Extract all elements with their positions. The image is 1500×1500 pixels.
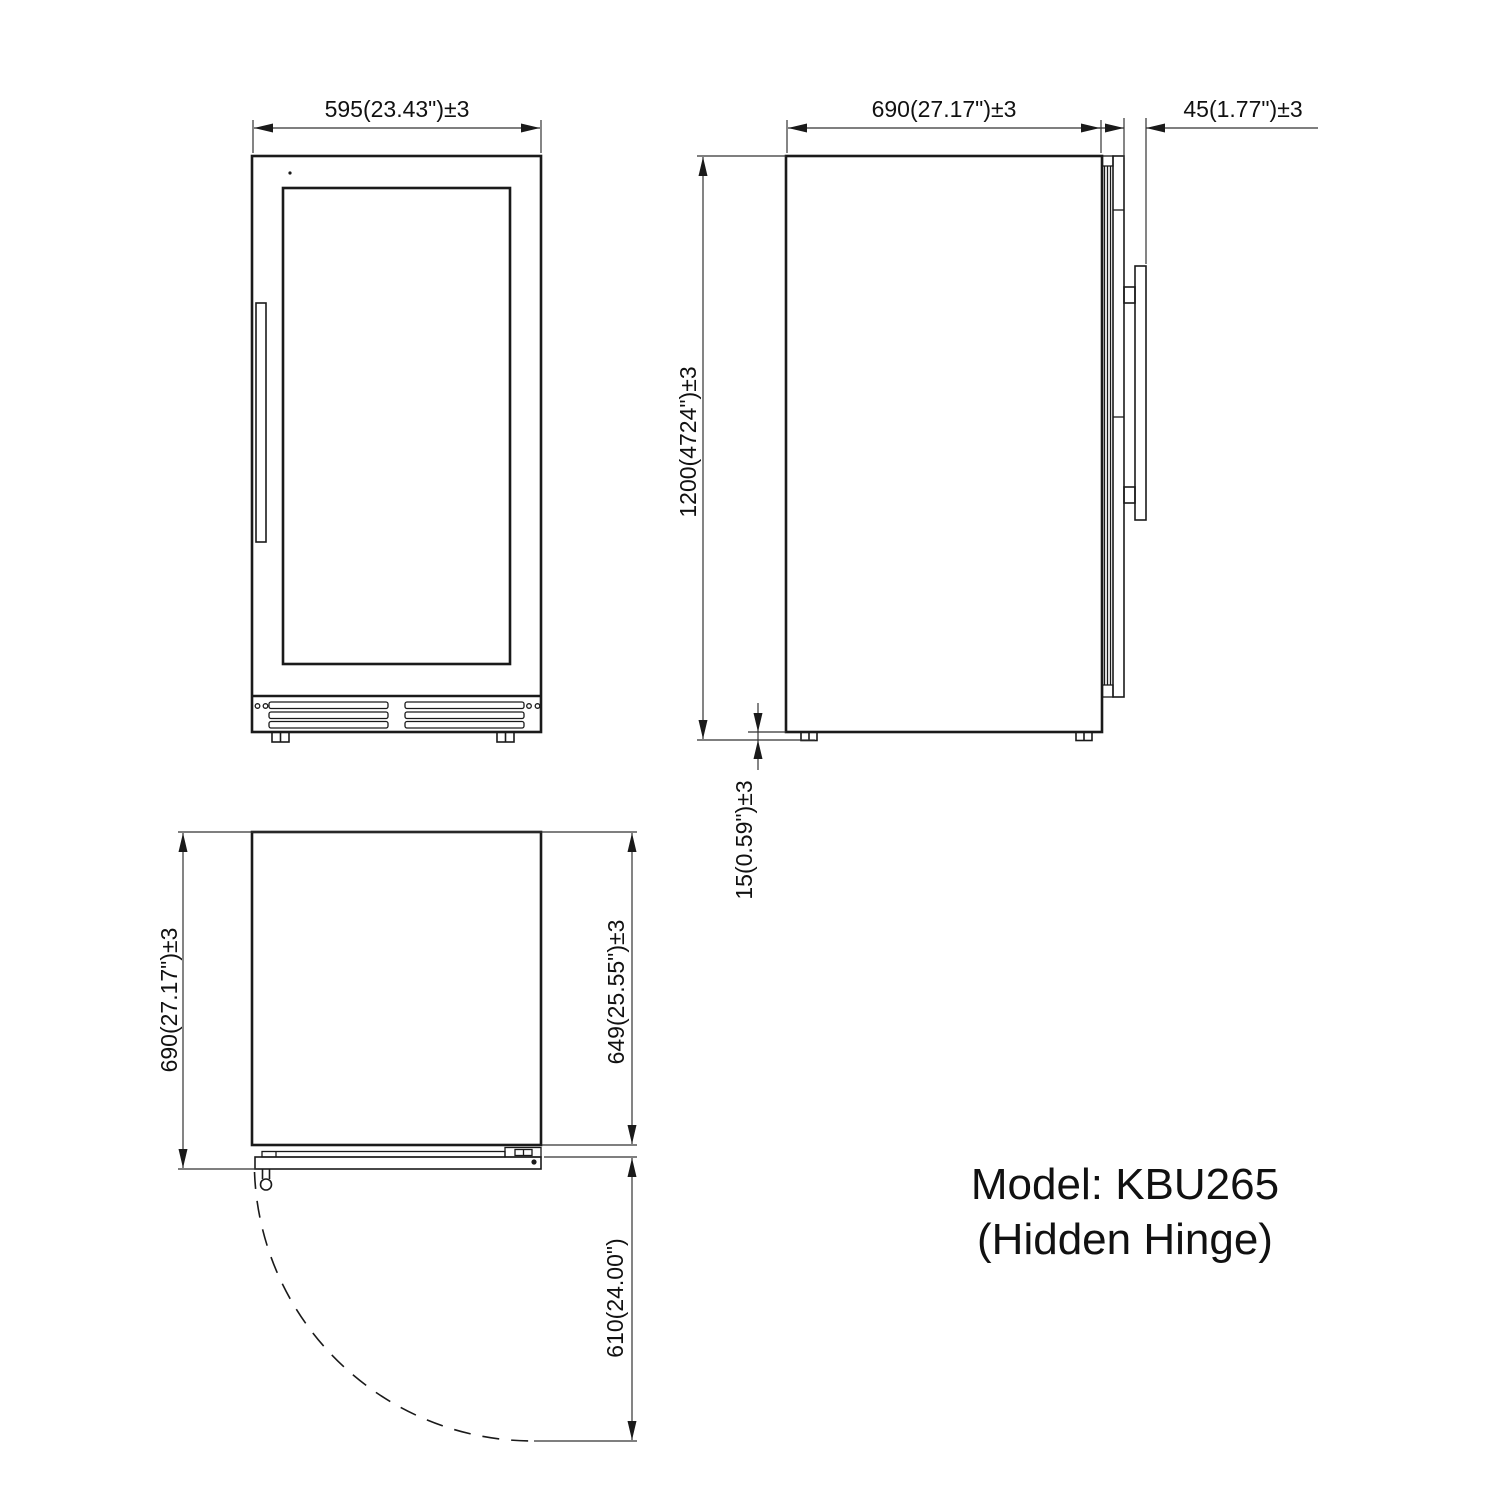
side-cabinet-outline — [786, 156, 1102, 732]
top-view — [252, 832, 541, 1441]
dim-door-thickness-label: 45(1.77")±3 — [1183, 96, 1302, 122]
door-surface-dot — [288, 171, 291, 174]
front-view — [252, 156, 541, 742]
vent-grille-left — [269, 702, 388, 728]
dim-top-body-depth-label: 649(25.55")±3 — [603, 920, 629, 1065]
drawing-svg: 595(23.43")±3 — [0, 0, 1500, 1500]
dim-door-thickness: 45(1.77")±3 — [1097, 96, 1318, 264]
dim-side-height-label: 1200(4724")±3 — [675, 366, 701, 517]
top-door-glass-band — [262, 1152, 505, 1158]
door-bottom-cap — [1103, 685, 1114, 697]
dim-top-overall-depth: 690(27.17")±3 — [156, 833, 258, 1169]
dim-front-width-label: 595(23.43")±3 — [325, 96, 470, 122]
model-hinge-text: (Hidden Hinge) — [977, 1215, 1273, 1264]
dim-foot-height-label: 15(0.59")±3 — [731, 780, 757, 899]
vent-grille-right — [405, 702, 524, 728]
dim-side-height: 1200(4724")±3 — [675, 156, 815, 740]
handle-standoff-bottom — [1124, 487, 1135, 503]
model-name-text: Model: KBU265 — [971, 1160, 1279, 1209]
door-top-cap — [1103, 156, 1114, 166]
dim-top-overall-depth-label: 690(27.17")±3 — [156, 928, 182, 1073]
dim-side-depth: 690(27.17")±3 — [787, 96, 1101, 153]
front-cabinet-outline — [252, 156, 541, 732]
front-feet — [272, 732, 514, 742]
side-door-handle — [1124, 266, 1146, 520]
dim-side-depth-label: 690(27.17")±3 — [872, 96, 1017, 122]
top-cabinet-outline — [252, 832, 541, 1145]
hidden-hinge-block — [505, 1148, 541, 1165]
technical-drawing-page: 595(23.43")±3 — [0, 0, 1500, 1500]
dim-door-swing-label: 610(24.00") — [602, 1238, 628, 1357]
top-door-slab — [255, 1157, 541, 1169]
dim-foot-height: 15(0.59")±3 — [731, 703, 786, 900]
front-glass-window — [283, 188, 510, 664]
handle-standoff-top — [1124, 287, 1135, 303]
dim-door-swing: 610(24.00") — [534, 1157, 637, 1441]
kickplate-screws — [255, 704, 540, 709]
dim-top-body-depth: 649(25.55")±3 — [542, 833, 637, 1145]
side-door-profile — [1103, 156, 1125, 697]
front-door-handle — [256, 303, 266, 542]
side-view — [786, 156, 1146, 741]
dim-front-width: 595(23.43")±3 — [253, 96, 541, 153]
model-annotation: Model: KBU265 (Hidden Hinge) — [971, 1160, 1279, 1264]
handle-bar — [1135, 266, 1146, 520]
door-swing-arc — [255, 1172, 535, 1441]
hinge-pivot-dot — [531, 1159, 536, 1164]
top-door-handle — [261, 1169, 272, 1190]
side-door-panel — [1113, 156, 1124, 697]
